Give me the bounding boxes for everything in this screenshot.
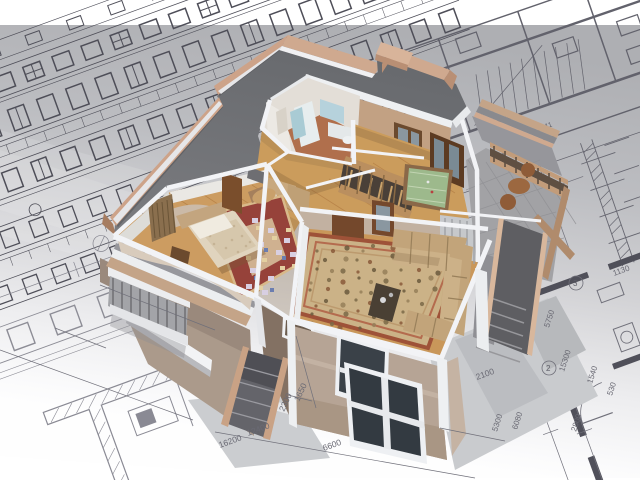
svg-text:2: 2 [546, 364, 551, 373]
svg-text:3: 3 [573, 279, 578, 288]
